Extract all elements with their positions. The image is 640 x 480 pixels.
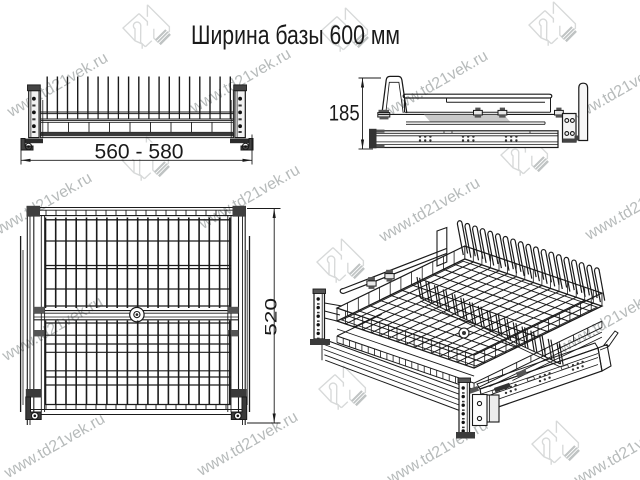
- svg-text:185: 185: [329, 101, 360, 126]
- svg-text:560 - 580: 560 - 580: [95, 141, 184, 164]
- svg-text:520: 520: [261, 298, 280, 336]
- svg-text:Ширина базы 600 мм: Ширина базы 600 мм: [191, 20, 400, 50]
